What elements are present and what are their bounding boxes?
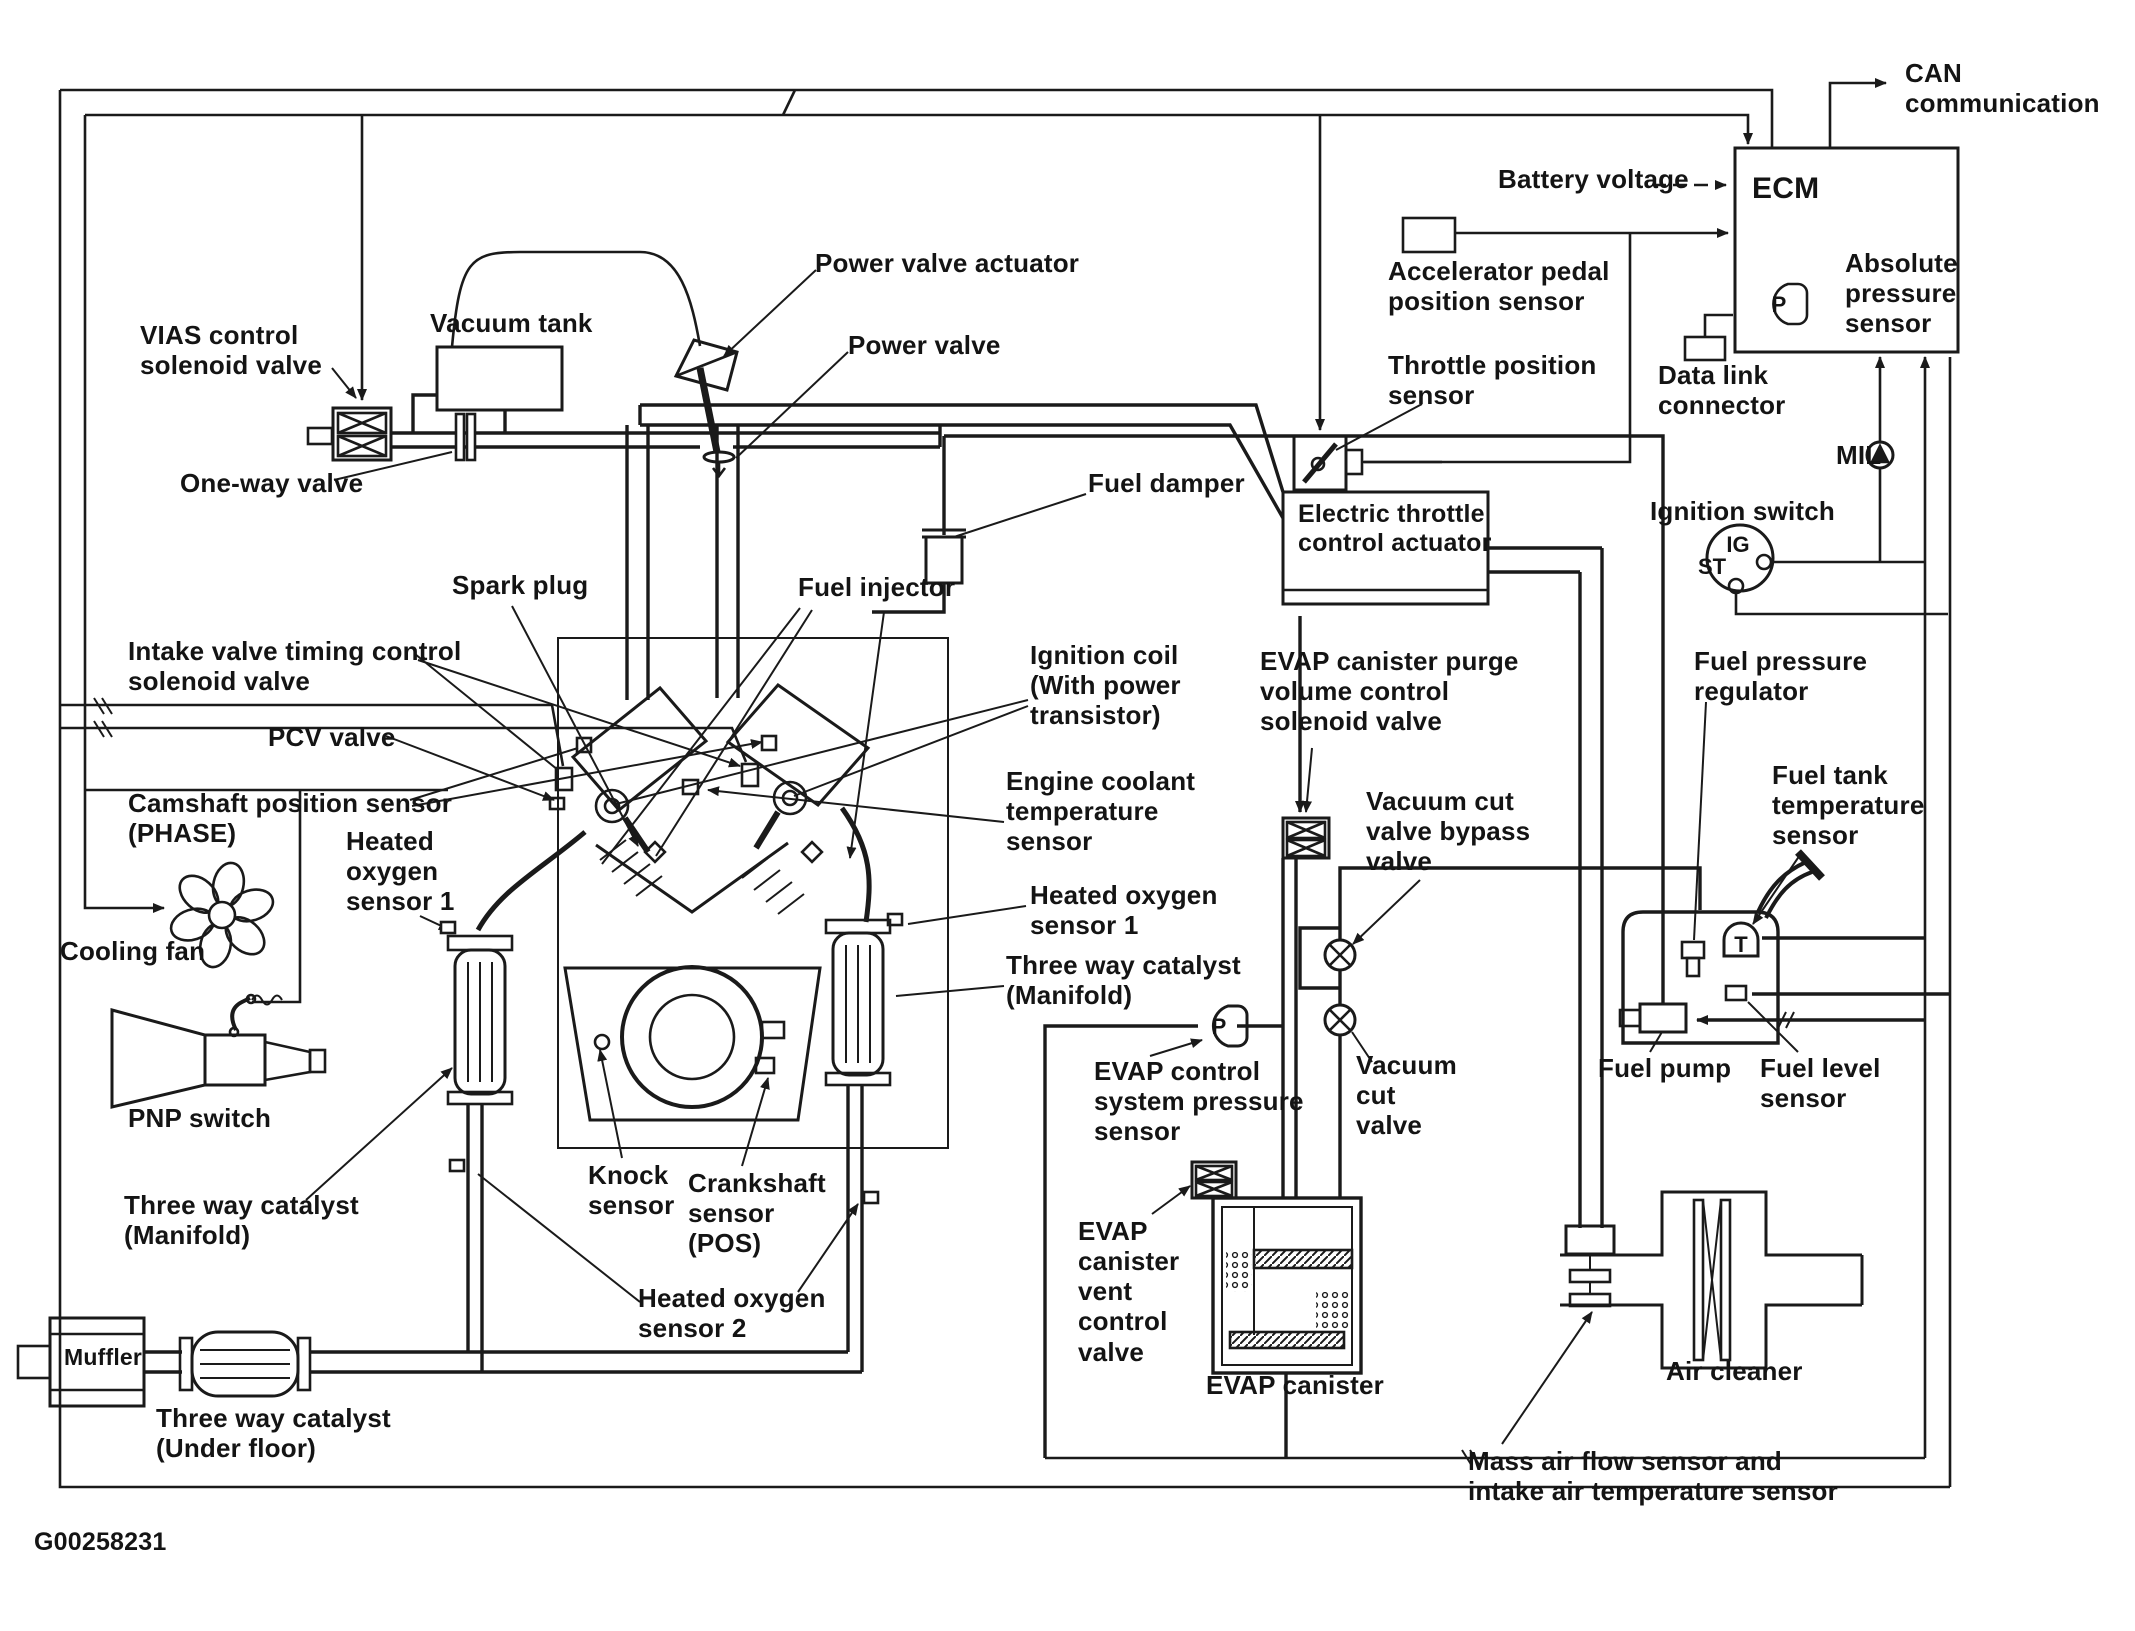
label-figure-id: G00258231	[34, 1528, 166, 1557]
label-muffler: Muffler	[64, 1344, 142, 1371]
label-absolute-pressure: Absolute pressure sensor	[1845, 248, 1958, 338]
label-fuel-level-sensor: Fuel level sensor	[1760, 1053, 1881, 1113]
label-evap-canister: EVAP canister	[1206, 1370, 1384, 1400]
label-evap-purge: EVAP canister purge volume control solen…	[1260, 646, 1519, 736]
label-power-valve-actuator: Power valve actuator	[815, 248, 1079, 278]
label-ignition-switch: Ignition switch	[1650, 496, 1835, 526]
label-twc-under-floor: Three way catalyst (Under floor)	[156, 1403, 391, 1463]
label-fuel-injector: Fuel injector	[798, 572, 955, 602]
label-engine-coolant-temp: Engine coolant temperature sensor	[1006, 766, 1195, 856]
label-accelerator-pedal: Accelerator pedal position sensor	[1388, 256, 1610, 316]
label-vias: VIAS control solenoid valve	[140, 320, 322, 380]
label-fuel-tank-temp: Fuel tank temperature sensor	[1772, 760, 1924, 850]
label-evap-vent-valve: EVAP canister vent control valve	[1078, 1216, 1179, 1367]
label-fuel-pressure-regulator: Fuel pressure regulator	[1694, 646, 1867, 706]
label-pcv-valve: PCV valve	[268, 722, 396, 752]
label-electric-throttle: Electric throttle control actuator	[1298, 500, 1492, 558]
label-crankshaft-sensor: Crankshaft sensor (POS)	[688, 1168, 826, 1258]
label-twc-manifold-left: Three way catalyst (Manifold)	[124, 1190, 359, 1250]
label-fuel-damper: Fuel damper	[1088, 468, 1245, 498]
label-ho2s2: Heated oxygen sensor 2	[638, 1283, 826, 1343]
label-intake-valve-timing: Intake valve timing control solenoid val…	[128, 636, 461, 696]
label-ho2s1-left: Heated oxygen sensor 1	[346, 826, 455, 916]
label-mil: MIL	[1836, 440, 1881, 470]
label-power-valve: Power valve	[848, 330, 1001, 360]
label-can-communication: CAN communication	[1905, 58, 2100, 118]
label-maf-sensor: Mass air flow sensor and intake air temp…	[1468, 1446, 1838, 1506]
label-layer: VIAS control solenoid valveVacuum tankOn…	[0, 0, 2135, 1631]
label-pnp-switch: PNP switch	[128, 1103, 271, 1133]
diagram-page: P P T IG ST VIAS control solenoid valveV…	[0, 0, 2135, 1631]
label-ecm: ECM	[1752, 172, 1819, 207]
label-spark-plug: Spark plug	[452, 570, 588, 600]
label-one-way-valve: One-way valve	[180, 468, 363, 498]
label-knock-sensor: Knock sensor	[588, 1160, 674, 1220]
label-vacuum-tank: Vacuum tank	[430, 308, 593, 338]
label-vacuum-cut-bypass: Vacuum cut valve bypass valve	[1366, 786, 1530, 876]
label-evap-pressure-sensor: EVAP control system pressure sensor	[1094, 1056, 1304, 1146]
label-ho2s1-right: Heated oxygen sensor 1	[1030, 880, 1218, 940]
label-twc-manifold-right: Three way catalyst (Manifold)	[1006, 950, 1241, 1010]
label-vacuum-cut-valve: Vacuum cut valve	[1356, 1050, 1457, 1140]
label-cooling-fan: Cooling fan	[60, 936, 205, 966]
label-fuel-pump: Fuel pump	[1598, 1053, 1731, 1083]
label-throttle-position: Throttle position sensor	[1388, 350, 1596, 410]
label-ignition-coil: Ignition coil (With power transistor)	[1030, 640, 1181, 730]
label-battery-voltage: Battery voltage	[1498, 164, 1689, 194]
label-air-cleaner: Air cleaner	[1666, 1356, 1803, 1386]
label-data-link-connector: Data link connector	[1658, 360, 1785, 420]
